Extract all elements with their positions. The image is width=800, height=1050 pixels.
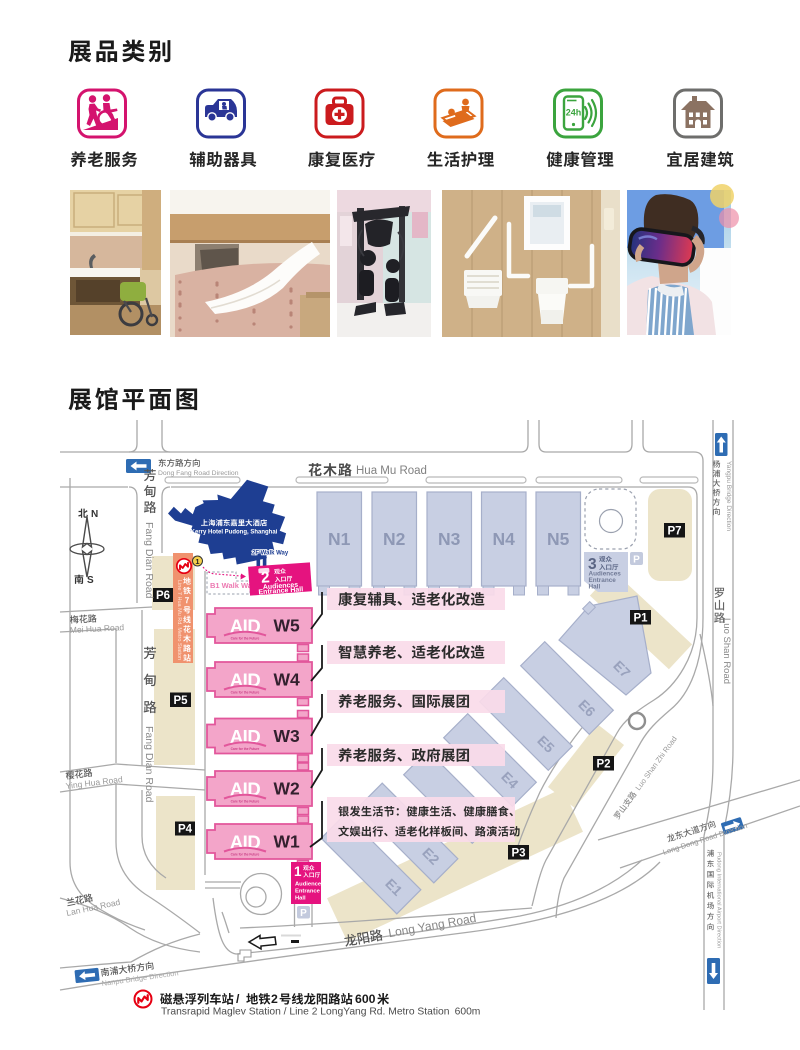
svg-text:Care for the Future: Care for the Future: [231, 800, 260, 804]
svg-text:P7: P7: [667, 525, 681, 537]
svg-text:N3: N3: [438, 529, 461, 549]
svg-text:Kerry Hotel Pudong, Shanghai: Kerry Hotel Pudong, Shanghai: [191, 530, 278, 536]
svg-text:Fang Dian Road: Fang Dian Road: [143, 726, 155, 803]
svg-text:P6: P6: [156, 590, 170, 602]
svg-text:N: N: [91, 509, 98, 520]
svg-text:Dong Fang Road Direction: Dong Fang Road Direction: [158, 470, 239, 477]
svg-text:Hall: Hall: [295, 896, 306, 902]
svg-text:W1: W1: [274, 832, 301, 852]
svg-text:Care for the Future: Care for the Future: [231, 691, 260, 695]
svg-text:W3: W3: [274, 726, 301, 746]
svg-text:N4: N4: [493, 529, 516, 549]
svg-text:W2: W2: [274, 779, 301, 799]
svg-text:Care for the Future: Care for the Future: [231, 853, 260, 857]
svg-text:1: 1: [195, 557, 199, 566]
svg-text:Line 7 Hua Mu Rd. Metro Statio: Line 7 Hua Mu Rd. Metro Station: [176, 580, 182, 660]
svg-text:Luo Shan Road: Luo Shan Road: [721, 618, 732, 684]
svg-text:Pudong International Airport D: Pudong International Airport Direction: [716, 852, 722, 948]
svg-text:P3: P3: [511, 847, 525, 859]
svg-text:Hua Mu Road: Hua Mu Road: [356, 465, 427, 477]
svg-text:Transrapid Maglev Station / Li: Transrapid Maglev Station / Line 2 LongY…: [161, 1007, 480, 1018]
svg-text:/: /: [236, 992, 240, 1006]
svg-text:Fang Dian Road: Fang Dian Road: [143, 522, 155, 599]
svg-text:P1: P1: [633, 612, 648, 624]
svg-text:P: P: [300, 908, 307, 919]
svg-text:2F Walk Way: 2F Walk Way: [252, 551, 289, 557]
svg-text:N5: N5: [547, 529, 570, 549]
svg-text:W5: W5: [274, 616, 301, 636]
svg-text:Care for the Future: Care for the Future: [231, 747, 260, 751]
svg-text:P: P: [633, 555, 640, 566]
svg-text:P5: P5: [173, 695, 188, 707]
svg-text:2: 2: [271, 992, 278, 1006]
svg-text:N2: N2: [383, 529, 406, 549]
svg-text:Yangpu Bridge Direction: Yangpu Bridge Direction: [725, 461, 732, 531]
svg-text:N1: N1: [328, 529, 351, 549]
svg-text:Audiences: Audiences: [295, 882, 324, 888]
svg-text:1: 1: [294, 864, 302, 879]
svg-text:24h: 24h: [566, 108, 582, 118]
svg-text:W4: W4: [274, 670, 301, 690]
svg-text:P2: P2: [596, 758, 610, 770]
svg-text:600: 600: [355, 992, 376, 1006]
svg-text:Hall: Hall: [589, 584, 601, 591]
svg-text:P4: P4: [178, 823, 193, 835]
svg-text:S: S: [87, 575, 94, 586]
svg-text:Care for the Future: Care for the Future: [231, 637, 260, 641]
svg-text:Entrance: Entrance: [295, 889, 321, 895]
